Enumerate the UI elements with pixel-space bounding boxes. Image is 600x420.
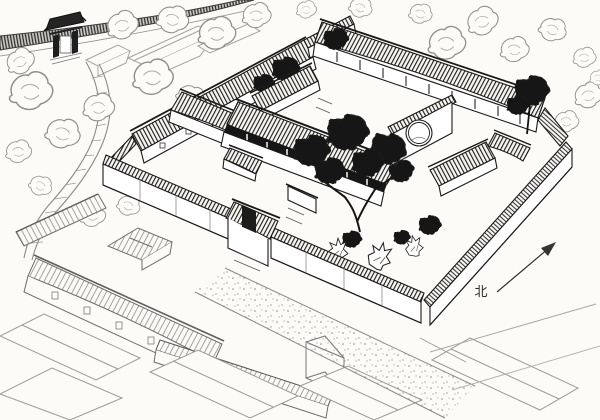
courtyard-compound-illustration: 北 xyxy=(0,0,600,420)
illustration-page: 北 xyxy=(0,0,600,420)
north-label: 北 xyxy=(474,285,487,300)
